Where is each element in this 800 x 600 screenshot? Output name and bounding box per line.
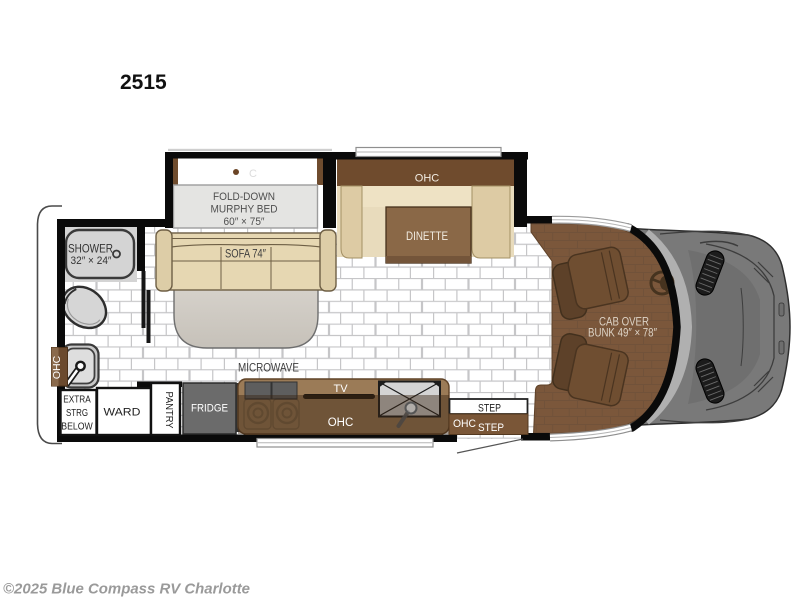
svg-text:OHC: OHC xyxy=(51,355,63,379)
svg-text:2515: 2515 xyxy=(120,71,167,94)
svg-text:OHC: OHC xyxy=(328,417,354,429)
svg-text:32″ × 24″: 32″ × 24″ xyxy=(71,255,112,267)
svg-text:EXTRA: EXTRA xyxy=(63,395,91,406)
svg-text:FRIDGE: FRIDGE xyxy=(191,403,228,415)
svg-text:60″ × 75″: 60″ × 75″ xyxy=(224,216,265,228)
svg-text:OHC: OHC xyxy=(453,418,476,430)
svg-text:OHC: OHC xyxy=(415,173,440,185)
svg-text:FOLD-DOWN: FOLD-DOWN xyxy=(213,191,275,203)
svg-text:STEP: STEP xyxy=(478,403,501,415)
svg-text:MURPHY BED: MURPHY BED xyxy=(211,204,278,216)
svg-text:TV: TV xyxy=(333,383,348,395)
svg-text:BELOW: BELOW xyxy=(61,422,93,433)
svg-text:STRG: STRG xyxy=(66,408,88,419)
svg-text:PANTRY: PANTRY xyxy=(163,392,175,429)
svg-text:DINETTE: DINETTE xyxy=(406,231,448,243)
svg-text:STEP: STEP xyxy=(478,422,504,434)
svg-text:BUNK 49″ × 78″: BUNK 49″ × 78″ xyxy=(588,326,658,340)
svg-text:MICROWAVE: MICROWAVE xyxy=(238,361,299,375)
svg-text:©2025 Blue Compass RV Charlott: ©2025 Blue Compass RV Charlotte xyxy=(3,581,250,598)
svg-text:SHOWER: SHOWER xyxy=(68,242,113,256)
svg-text:SOFA 74″: SOFA 74″ xyxy=(225,249,266,261)
svg-text:WARD: WARD xyxy=(104,407,141,419)
svg-text:C: C xyxy=(249,168,257,180)
